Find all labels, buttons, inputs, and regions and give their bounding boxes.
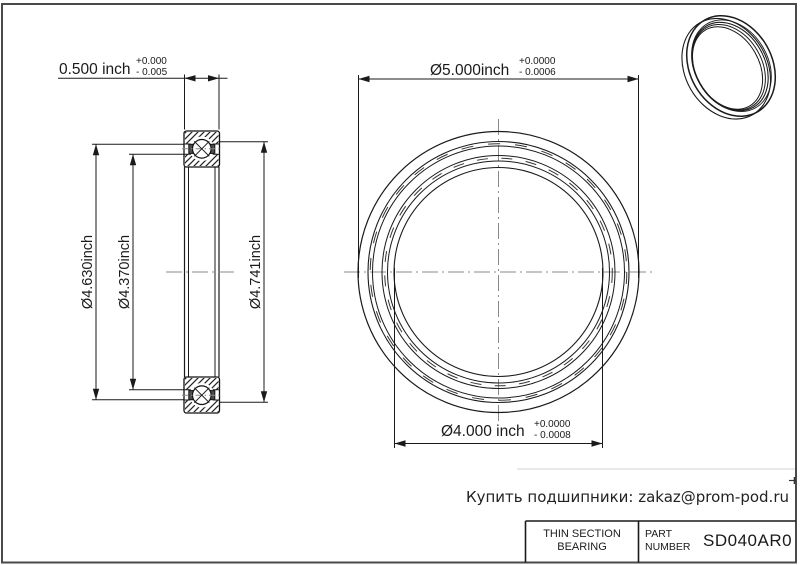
arrowhead-right-icon — [628, 76, 639, 82]
width-dimension-value: 0.500 inch — [59, 61, 131, 79]
tolerance-minus: - 0.005 — [136, 67, 167, 78]
dim-4630-label: Ø4.630inch — [80, 235, 96, 309]
part-number-label: PART NUMBER — [645, 528, 691, 554]
arrowhead-right-icon — [208, 75, 219, 81]
top-ring-section — [182, 131, 222, 167]
part-label-line1: PART — [645, 528, 691, 541]
bore-dimension-tolerance: +0.0000 - 0.0008 — [534, 419, 571, 441]
width-dimension-lines — [58, 75, 228, 130]
tolerance-plus: +0.0000 — [519, 56, 556, 67]
bearing-type-label: THIN SECTION BEARING — [526, 528, 638, 554]
od-dimension-tolerance: +0.0000 - 0.0006 — [519, 56, 556, 78]
contact-line: Купить подшипники: zakaz@prom-pod.ru — [466, 488, 789, 506]
bottom-ring-section — [182, 377, 222, 413]
tolerance-plus: +0.000 — [136, 56, 167, 67]
arrowhead-down-icon — [261, 391, 267, 402]
arrowhead-down-icon — [93, 389, 99, 400]
arrowhead-right-icon — [592, 440, 603, 446]
arrowhead-up-icon — [93, 144, 99, 155]
arrowhead-down-icon — [130, 379, 136, 390]
arrowhead-up-icon — [130, 154, 136, 165]
tolerance-minus: - 0.0006 — [519, 67, 556, 78]
dim-4741-label: Ø4.741inch — [248, 235, 264, 309]
arrowhead-left-icon — [185, 75, 196, 81]
arrowhead-left-icon — [359, 76, 370, 82]
part-number-value: SD040AR0 — [703, 531, 792, 551]
part-label-line2: NUMBER — [645, 541, 691, 554]
front-view — [344, 75, 656, 448]
bearing-type-line1: THIN SECTION — [526, 528, 638, 541]
arrowhead-left-icon — [395, 440, 406, 446]
tolerance-minus: - 0.0008 — [534, 430, 571, 441]
od-dimension-value: Ø5.000inch — [430, 62, 509, 80]
drawing-canvas: 0.500 inch +0.000 - 0.005 Ø4.630inch Ø4.… — [0, 0, 800, 565]
tolerance-plus: +0.0000 — [534, 419, 571, 430]
dim-4370-label: Ø4.370inch — [117, 235, 133, 309]
bearing-type-line2: BEARING — [526, 541, 638, 554]
arrowhead-up-icon — [261, 142, 267, 153]
width-dimension-tolerance: +0.000 - 0.005 — [136, 56, 167, 78]
bore-dimension-value: Ø4.000 inch — [441, 423, 525, 441]
isometric-view — [664, 0, 793, 135]
